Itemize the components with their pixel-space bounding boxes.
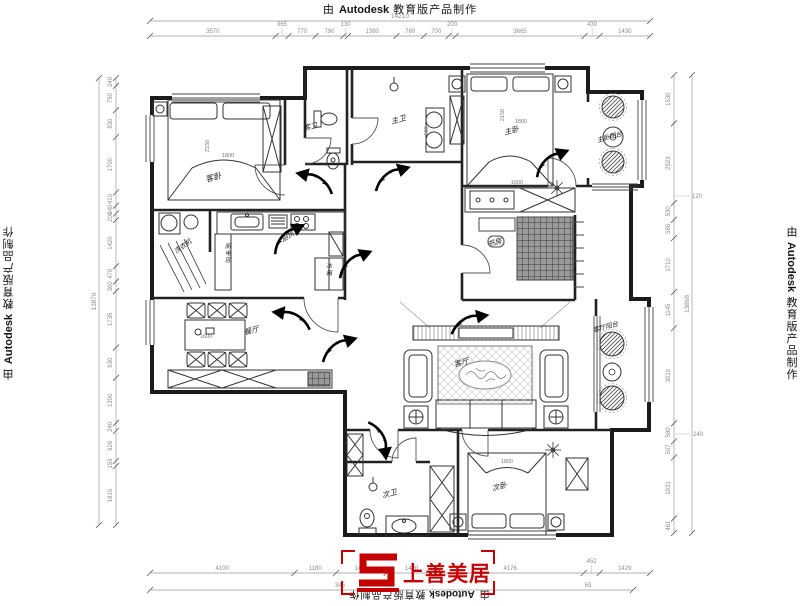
kitchen-furniture <box>215 212 345 290</box>
room-label-second-bedroom: 次卧 <box>491 480 508 493</box>
svg-text:780: 780 <box>405 29 416 35</box>
svg-text:1700: 1700 <box>108 157 114 171</box>
svg-text:770: 770 <box>297 29 308 35</box>
svg-text:790: 790 <box>324 29 335 35</box>
flow-arrow <box>269 304 313 330</box>
windows <box>145 63 654 540</box>
svg-text:1735: 1735 <box>108 312 114 326</box>
svg-text:700: 700 <box>431 29 442 35</box>
svg-text:1530: 1530 <box>666 92 672 106</box>
svg-text:200: 200 <box>447 22 458 28</box>
room-label-master-bedroom: 主卧 <box>503 124 520 137</box>
second-bath-fixtures <box>347 434 454 536</box>
master-bedroom-furniture <box>449 74 575 212</box>
plant-star-icon <box>545 442 561 458</box>
svg-text:461: 461 <box>666 520 672 531</box>
svg-text:1710: 1710 <box>666 258 672 272</box>
svg-text:580: 580 <box>666 427 672 438</box>
svg-text:1800: 1800 <box>222 153 234 159</box>
svg-text:470: 470 <box>108 268 114 279</box>
svg-text:926: 926 <box>108 440 114 451</box>
svg-text:507: 507 <box>666 444 672 455</box>
plant-icon <box>603 363 621 381</box>
study-furniture <box>479 217 573 280</box>
flow-arrows <box>266 143 575 463</box>
logo-text: 上善美居 <box>403 558 491 588</box>
svg-text:240: 240 <box>108 76 114 87</box>
logo-s-icon <box>349 552 401 594</box>
svg-text:14210: 14210 <box>391 13 409 20</box>
flow-arrow <box>292 165 337 194</box>
svg-text:1815: 1815 <box>108 488 114 502</box>
svg-text:830: 830 <box>108 118 114 129</box>
second-bedroom-furniture <box>450 453 588 535</box>
svg-text:580: 580 <box>666 223 672 234</box>
living-room-furniture <box>400 302 570 436</box>
svg-text:1180: 1180 <box>309 566 323 572</box>
svg-text:3010: 3010 <box>666 368 672 382</box>
svg-text:240: 240 <box>108 421 114 432</box>
svg-text:2523: 2523 <box>666 156 672 170</box>
svg-text:59: 59 <box>585 583 592 589</box>
plant-icon <box>600 386 624 410</box>
svg-text:1600: 1600 <box>200 334 212 340</box>
svg-text:1145: 1145 <box>666 303 672 317</box>
svg-text:1429: 1429 <box>618 566 632 572</box>
svg-text:930: 930 <box>108 357 114 368</box>
room-label-second-bath: 次卫 <box>381 487 398 500</box>
svg-text:13870: 13870 <box>91 292 98 310</box>
svg-text:750: 750 <box>108 92 114 103</box>
room-label-dining: 餐厅 <box>243 324 261 337</box>
ceiling-lamp-icon <box>390 83 398 91</box>
svg-text:4100: 4100 <box>216 566 230 572</box>
room-label-fridge: 冰箱 <box>326 262 333 277</box>
guest-bedroom-furniture <box>153 100 281 200</box>
svg-text:200: 200 <box>108 211 114 222</box>
svg-text:3570: 3570 <box>206 29 220 35</box>
svg-text:410: 410 <box>108 193 114 204</box>
svg-text:1420: 1420 <box>108 236 114 250</box>
svg-text:2150: 2150 <box>205 140 211 152</box>
svg-text:13868: 13868 <box>684 295 691 313</box>
svg-text:1600: 1600 <box>511 180 523 186</box>
exterior-walls <box>152 68 649 535</box>
dining-furniture <box>168 303 332 388</box>
svg-text:300: 300 <box>108 281 114 292</box>
svg-text:530: 530 <box>666 206 672 217</box>
svg-text:1800: 1800 <box>501 459 513 465</box>
svg-text:365: 365 <box>277 22 288 28</box>
svg-text:600: 600 <box>424 126 430 135</box>
plant-icon <box>602 151 624 173</box>
svg-text:2150: 2150 <box>500 109 506 121</box>
svg-text:452: 452 <box>587 559 598 565</box>
svg-text:1390: 1390 <box>108 393 114 407</box>
svg-text:130: 130 <box>341 22 352 28</box>
floorplan-page: 由 Autodesk 教育版产品制作 由 Autodesk 教育版产品制作 由 … <box>0 0 800 606</box>
room-label-master-bath: 主卫 <box>390 113 407 126</box>
svg-text:240: 240 <box>693 432 704 438</box>
plant-icon <box>602 96 624 118</box>
flow-arrow <box>317 330 362 362</box>
svg-text:3665: 3665 <box>513 29 527 35</box>
room-label-guest-bedroom: 客卧 <box>204 171 223 184</box>
plant-icon <box>600 332 624 356</box>
plant-star-icon <box>549 180 565 196</box>
logo-shangshanmeiju: 上善美居 <box>341 550 495 595</box>
svg-text:120: 120 <box>692 194 703 200</box>
flow-arrow <box>529 143 574 178</box>
laundry-furniture <box>159 213 206 292</box>
svg-text:4176: 4176 <box>503 566 517 572</box>
flow-arrow <box>370 159 415 191</box>
svg-text:430: 430 <box>587 22 598 28</box>
ceiling-lamp-icon <box>369 483 377 491</box>
svg-text:1380: 1380 <box>366 29 380 35</box>
svg-text:1931: 1931 <box>666 481 672 495</box>
interior-walls <box>152 68 642 535</box>
svg-text:159: 159 <box>108 458 114 469</box>
svg-text:1430: 1430 <box>618 29 632 35</box>
room-label-kitchen-appliance-zone: 厨电区 <box>225 243 232 264</box>
svg-text:1800: 1800 <box>515 119 527 125</box>
floorplan-canvas: 1421035703657707901301380780700200366543… <box>0 0 800 606</box>
master-bath-fixtures <box>426 96 464 152</box>
